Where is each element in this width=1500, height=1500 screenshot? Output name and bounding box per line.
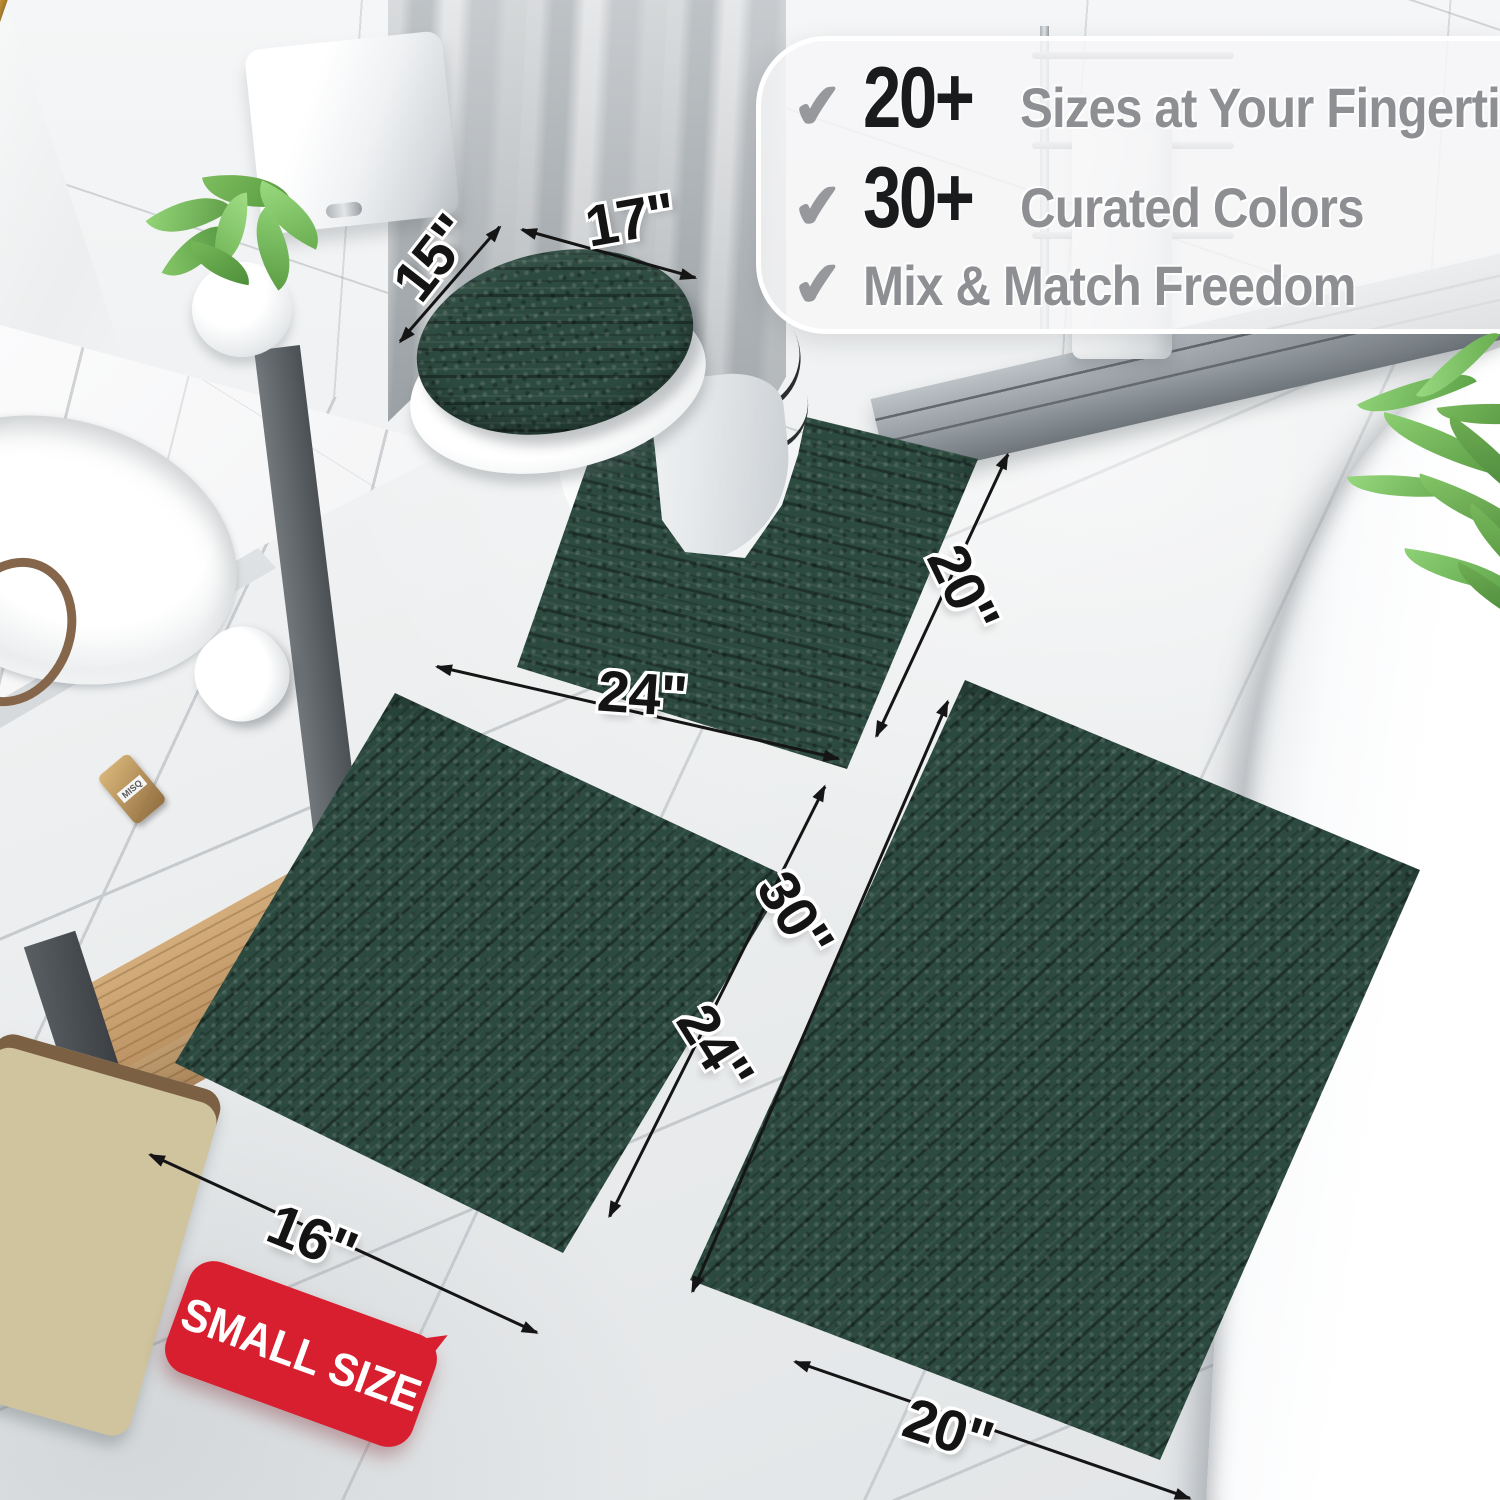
feature-callout: ✔ 20+ Sizes at Your Fingertips ✔ 30+ Cur… (756, 36, 1500, 334)
bathroom-product-scene: MISQ 15" 17" 24" 20" 24" 30" 16" 20" SMA… (0, 0, 1500, 1500)
feature-row: ✔ 20+ Sizes at Your Fingertips (793, 55, 1500, 141)
feature-text: Curated Colors (1020, 180, 1364, 236)
checkmark-icon: ✔ (790, 253, 846, 318)
dimension-label-contour-width: 24" (595, 657, 688, 730)
feature-text: Sizes at Your Fingertips (1020, 80, 1500, 136)
feature-row: ✔ 30+ Curated Colors (793, 155, 1500, 241)
feature-number: 30+ (863, 155, 973, 241)
bottle-label: MISQ (117, 775, 147, 803)
feature-text: Mix & Match Freedom (863, 258, 1356, 314)
feature-row: ✔ Mix & Match Freedom (793, 255, 1500, 315)
checkmark-icon: ✔ (790, 175, 846, 240)
feature-number: 20+ (863, 55, 973, 141)
checkmark-icon: ✔ (790, 75, 846, 140)
